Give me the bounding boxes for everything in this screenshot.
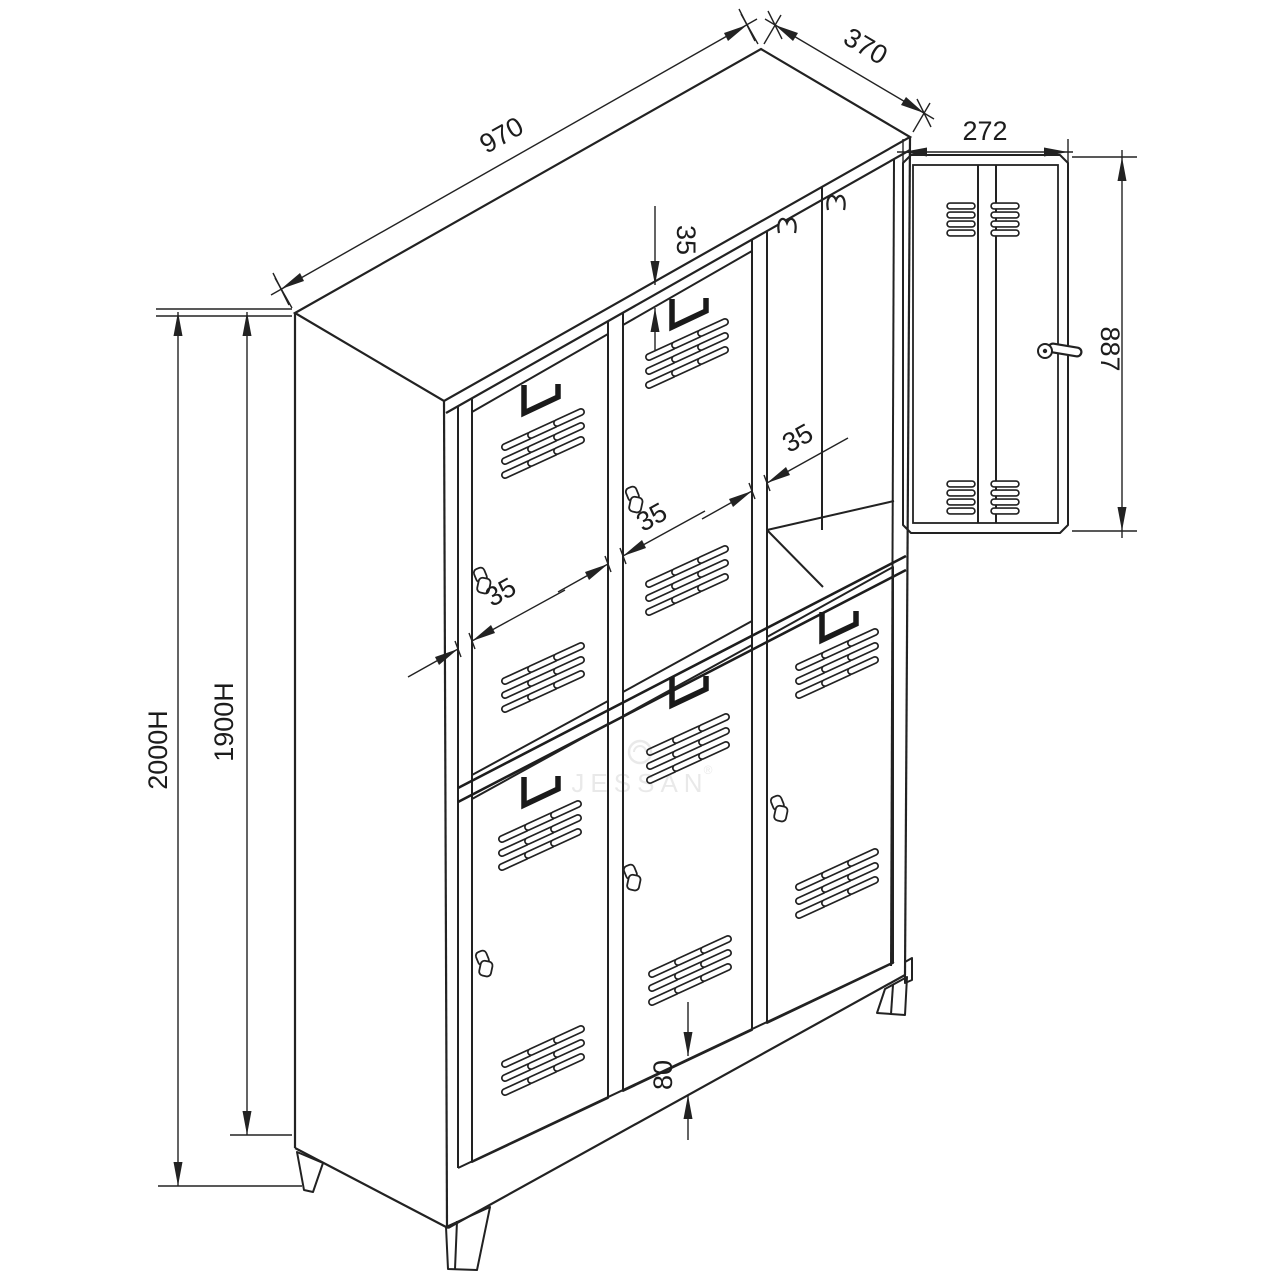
dim-970-label: 970 [475, 111, 529, 159]
dim-272-label: 272 [962, 116, 1007, 146]
coat-hook-icon [778, 219, 795, 233]
foot-front-left-edge [455, 1221, 457, 1269]
open-door-inner [913, 165, 1058, 523]
coat-hook-icon [827, 196, 844, 210]
door-vent-group [950, 484, 972, 511]
dim-370-label: 370 [839, 22, 893, 71]
dim-887-label: 887 [1095, 326, 1125, 371]
locker-technical-drawing: 970 370 2000H 1900H [0, 0, 1280, 1280]
side-panel [295, 313, 447, 1228]
cabinet-body [295, 49, 910, 1228]
dim-80-label: 80 [648, 1060, 678, 1090]
dim-door-height: 887 [1072, 150, 1137, 538]
door-vent-group [994, 206, 1016, 233]
dim-door-width: 272 [897, 116, 1073, 166]
dim-2000h-label: 2000H [143, 710, 173, 790]
watermark-brand: JESSAN [571, 768, 708, 798]
foot-front-right-edge [891, 985, 893, 1014]
dim-35-top-label: 35 [671, 225, 701, 255]
latch-bar-fill [1053, 348, 1077, 352]
watermark-registered: ® [704, 763, 713, 777]
dim-heights: 2000H 1900H [143, 309, 302, 1186]
lock-keyhole [1043, 349, 1047, 353]
door-vent-group [994, 484, 1016, 511]
open-door-panel [903, 155, 1077, 533]
door-vent-group [950, 206, 972, 233]
dim-1900h-label: 1900H [209, 682, 239, 762]
